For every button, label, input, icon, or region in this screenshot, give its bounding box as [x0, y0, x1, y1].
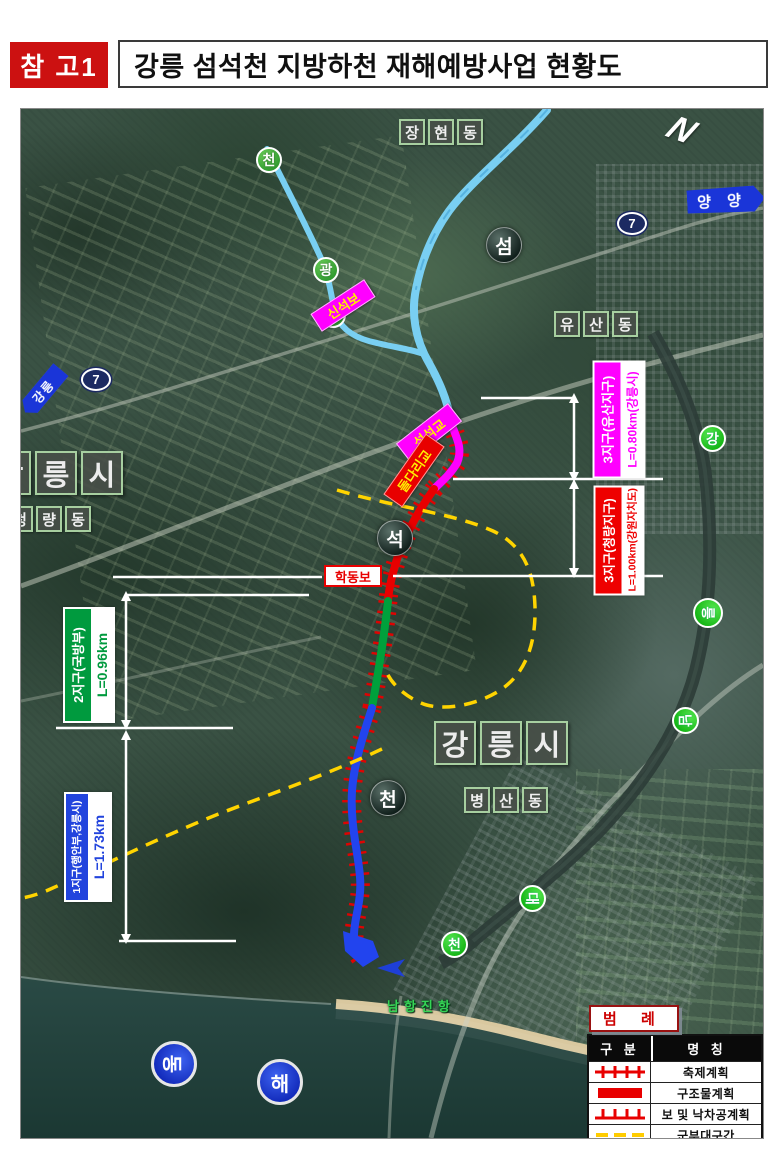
weir-drop-plan-symbol — [589, 1104, 651, 1124]
river-circle-nam: 남 — [672, 707, 699, 734]
map-vector-overlay — [21, 109, 763, 1138]
levee-plan-symbol — [589, 1062, 651, 1082]
city-label-gangneung-west: 강 릉 시 — [20, 451, 123, 495]
label-char: 시 — [81, 451, 123, 495]
area-label-janghyeon: 장 현 동 — [399, 119, 483, 145]
river-circle-dae: 대 — [519, 885, 546, 912]
dimension-arrowheads — [121, 393, 579, 944]
river-circle-reung: 릉 — [693, 598, 723, 628]
stream-circle-cheon: 천 — [256, 147, 282, 173]
zone-length: L=0.80km(강릉시) — [620, 363, 644, 477]
legend: 범 례 구 분 명 칭 축제계획 구조물계획 — [587, 1005, 764, 1139]
area-label-byeongsan: 병 산 동 — [464, 787, 548, 813]
label-char: 동 — [65, 506, 91, 532]
legend-row: 구조물계획 — [589, 1082, 761, 1103]
label-char: 산 — [583, 311, 609, 337]
legend-row: 군부대구간 — [589, 1124, 761, 1139]
namdaecheon-river — [441, 333, 710, 963]
dark-circle-seok: 석 — [377, 520, 413, 556]
project-levee-ticks — [352, 423, 460, 960]
route-7-shield-west: 7 — [81, 368, 111, 391]
callout-zone1-interior: 1지구(행안부,강릉시) L=1.73km — [64, 792, 112, 902]
label-char: 현 — [428, 119, 454, 145]
river-circle-gang: 강 — [699, 425, 726, 452]
structure-plan-symbol — [589, 1083, 651, 1103]
namhangjin-port-label: 남항진항 — [387, 996, 455, 1015]
military-zone-symbol — [589, 1125, 651, 1139]
dark-circle-cheon: 천 — [370, 780, 406, 816]
label-char: 릉 — [35, 451, 77, 495]
estuary — [343, 931, 405, 977]
label-char: 동 — [457, 119, 483, 145]
label-char: 강 — [434, 721, 476, 765]
legend-row: 축제계획 — [589, 1061, 761, 1082]
legend-row-name: 축제계획 — [651, 1064, 761, 1081]
legend-row-name: 군부대구간 — [651, 1127, 761, 1140]
label-char: 동 — [612, 311, 638, 337]
label-char: 릉 — [480, 721, 522, 765]
callout-zone3-yusan: 3지구(유산지구) L=0.80km(강릉시) — [593, 361, 646, 479]
label-char: 장 — [399, 119, 425, 145]
legend-title: 범 례 — [589, 1005, 679, 1032]
sea-circle-hae: 해 — [257, 1059, 303, 1105]
legend-table: 구 분 명 칭 축제계획 구조물계획 — [587, 1034, 763, 1139]
legend-row-name: 구조물계획 — [651, 1085, 761, 1102]
label-char: 병 — [464, 787, 490, 813]
label-char: 동 — [522, 787, 548, 813]
reference-badge: 참 고1 — [10, 42, 108, 88]
callout-zone2-defense: 2지구(국방부) L=0.96km — [63, 607, 115, 723]
hakdong-weir-label: 학동보 — [324, 565, 382, 587]
zone-name: 2지구(국방부) — [65, 609, 90, 721]
zone1-interior-segment — [352, 708, 372, 960]
zone-name: 3지구(유산지구) — [595, 363, 620, 477]
legend-row: 보 및 낙차공계획 — [589, 1103, 761, 1124]
area-label-cheongnyang: 청 량 동 — [20, 506, 91, 532]
legend-header: 구 분 명 칭 — [589, 1036, 761, 1061]
zone-name: 1지구(행안부,강릉시) — [66, 794, 87, 900]
legend-col-name: 명 칭 — [653, 1036, 761, 1061]
area-label-yusan: 유 산 동 — [554, 311, 638, 337]
satellite-map: N 장 현 동 유 산 동 청 량 동 병 산 동 강 릉 시 강 릉 시 천 … — [20, 108, 764, 1139]
seomseokcheon-upper-river — [267, 110, 547, 421]
label-char: 시 — [526, 721, 568, 765]
label-char: 청 — [20, 506, 33, 532]
zone-name: 3지구(청량지구) — [596, 488, 621, 594]
label-char: 량 — [36, 506, 62, 532]
zone-length: L=0.96km — [90, 609, 113, 721]
page-title: 강릉 섬석천 지방하천 재해예방사업 현황도 — [118, 40, 768, 88]
legend-row-name: 보 및 낙차공계획 — [651, 1106, 761, 1123]
label-char: 산 — [493, 787, 519, 813]
callout-zone3-cheongnyang: 3지구(청량지구) L=1.00km(강원자치도) — [594, 486, 645, 596]
project-zone-segments — [352, 423, 460, 960]
stream-circle-gwang: 광 — [313, 257, 339, 283]
label-char: 강 — [20, 451, 31, 495]
city-label-gangneung-south: 강 릉 시 — [434, 721, 568, 765]
legend-col-type: 구 분 — [589, 1036, 653, 1061]
river-circle-cheon: 천 — [441, 931, 468, 958]
route-7-shield-east: 7 — [617, 212, 647, 235]
zone-length: L=1.73km — [87, 794, 110, 900]
dark-circle-seom: 섬 — [486, 227, 522, 263]
sea-circle-dong: 동 — [151, 1041, 197, 1087]
zone-length: L=1.00km(강원자치도) — [621, 488, 643, 594]
label-char: 유 — [554, 311, 580, 337]
